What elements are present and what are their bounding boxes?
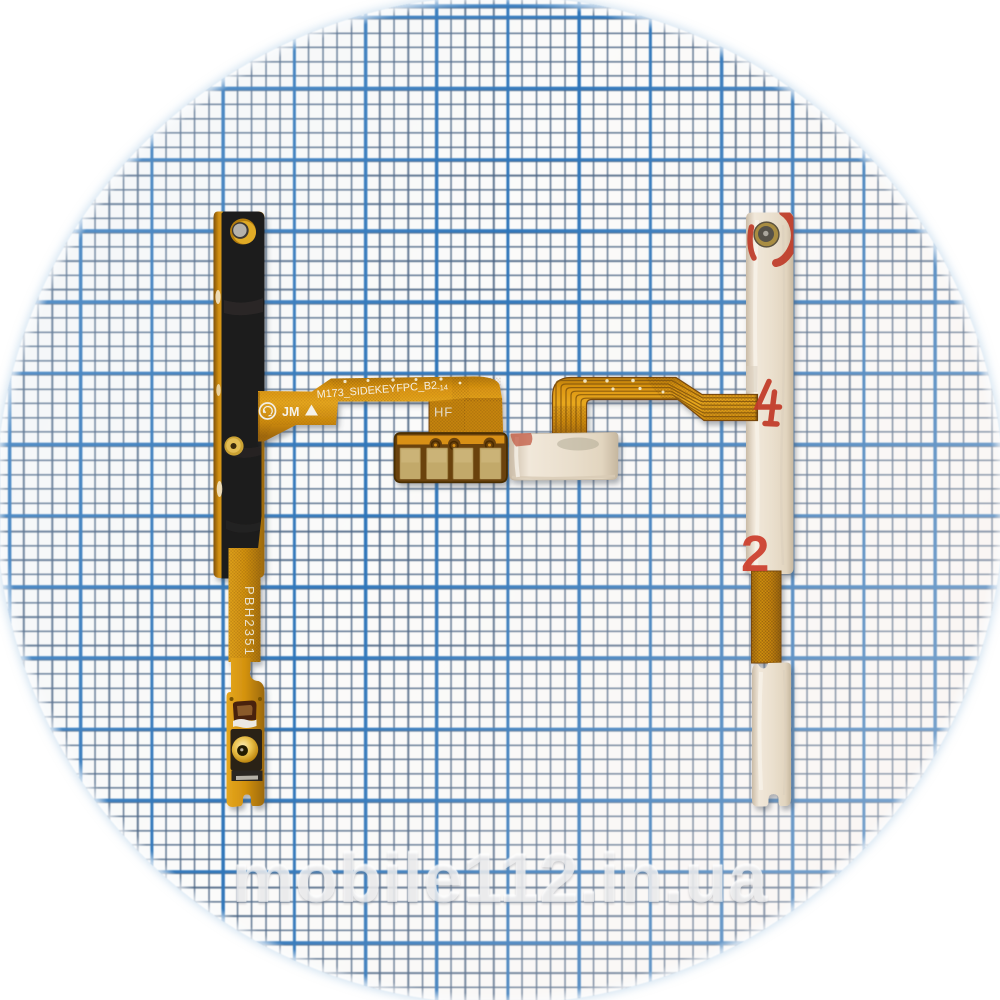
svg-text:HF: HF (434, 405, 453, 420)
svg-text:JM: JM (282, 405, 299, 419)
svg-text:PBH2351: PBH2351 (242, 586, 257, 657)
svg-text:2: 2 (741, 525, 769, 582)
